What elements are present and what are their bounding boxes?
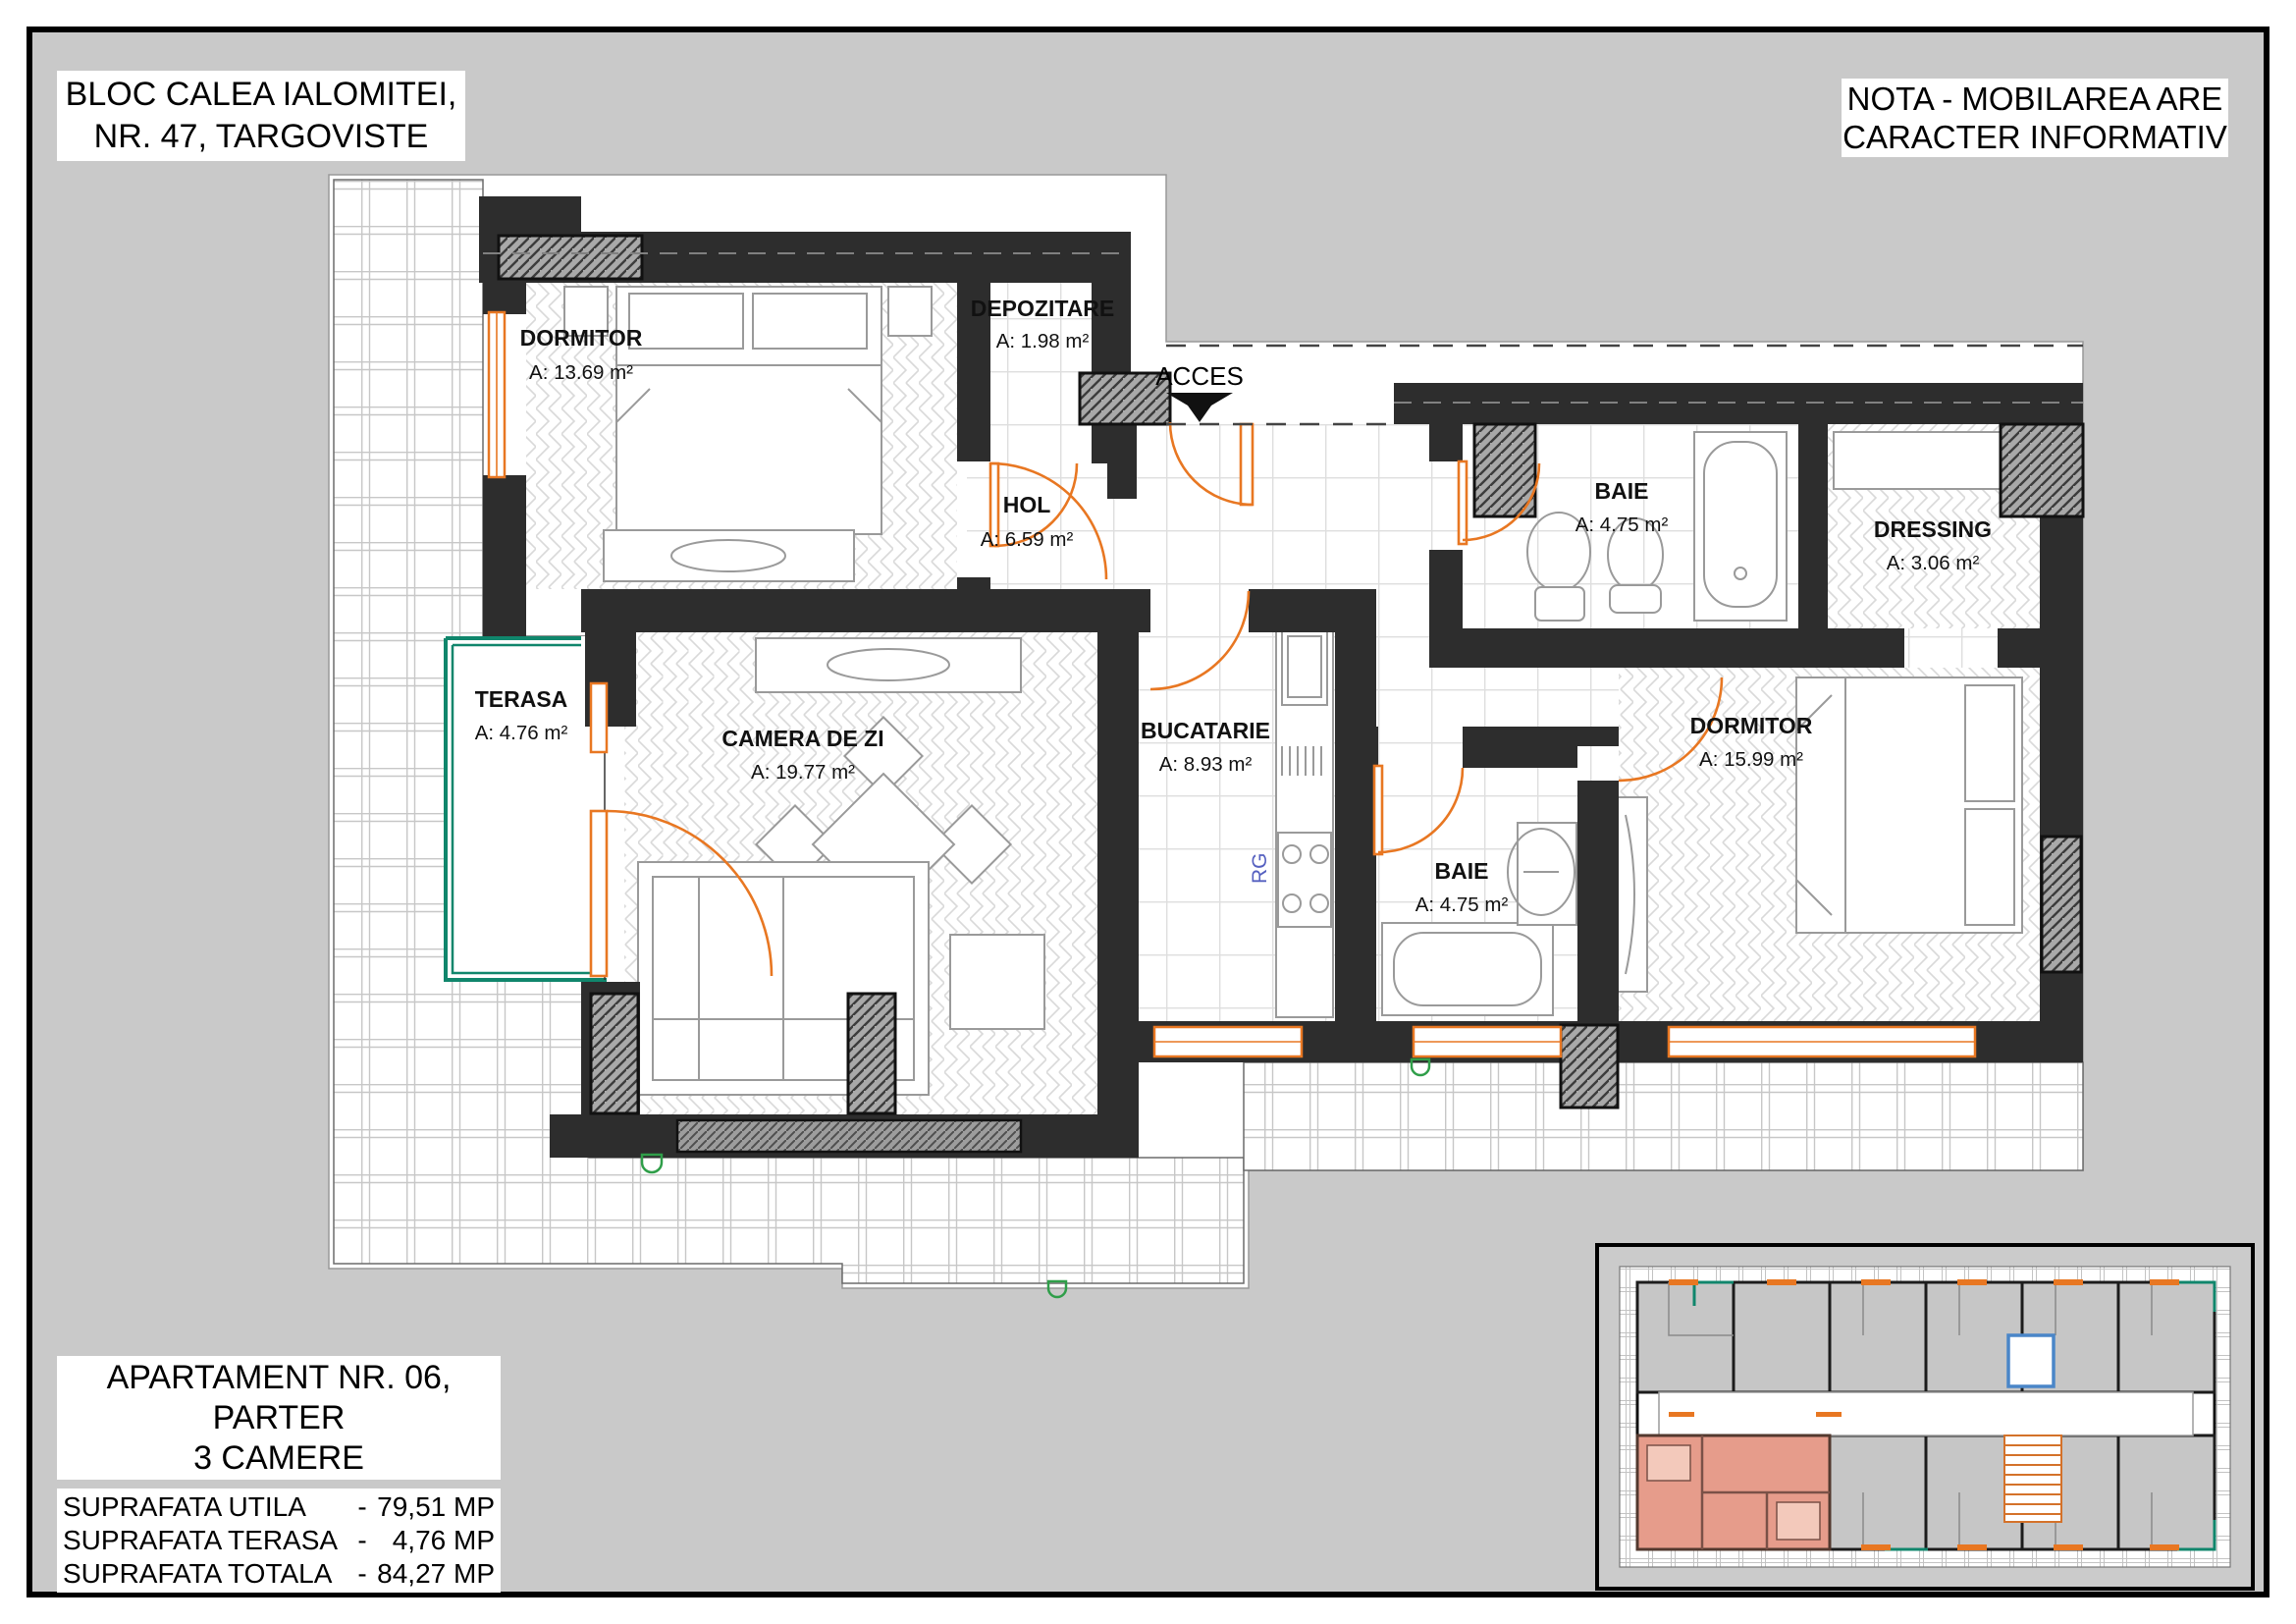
apartment-box: APARTAMENT NR. 06, PARTER 3 CAMERE (57, 1356, 501, 1480)
room-area-dressing: A: 3.06 m² (1887, 552, 1980, 574)
note-line-1: NOTA - MOBILAREA ARE (1842, 80, 2228, 118)
room-label-depozitare: DEPOZITARE (971, 296, 1115, 321)
area-dash: - (349, 1524, 375, 1557)
terrace-door-leaf (591, 811, 607, 976)
keyplan-highlight-apartment (1637, 1435, 1830, 1549)
area-value: 79,51 MP (375, 1490, 495, 1524)
apartment-line-3: 3 CAMERE (57, 1438, 501, 1479)
window-terasa (591, 683, 607, 752)
room-area-dormitor-1: A: 13.69 m² (529, 361, 633, 384)
room-area-baie-1: A: 4.75 m² (1575, 514, 1669, 536)
keyplan-minimap (1597, 1245, 2253, 1589)
room-area-depozitare: A: 1.98 m² (996, 330, 1090, 352)
area-label: SUPRAFATA TOTALA (63, 1557, 349, 1591)
room-area-dormitor-2: A: 15.99 m² (1699, 748, 1803, 771)
furniture-bucatarie (1276, 595, 1333, 1017)
area-row-terasa: SUPRAFATA TERASA - 4,76 MP (63, 1524, 495, 1557)
coffee-table (950, 935, 1044, 1029)
entry-door-leaf (1241, 424, 1253, 505)
room-label-camera-de-zi: CAMERA DE ZI (721, 726, 883, 751)
room-area-hol: A: 6.59 m² (981, 528, 1074, 551)
area-value: 4,76 MP (375, 1524, 495, 1557)
room-area-camera-de-zi: A: 19.77 m² (751, 761, 855, 784)
room-label-dormitor-2: DORMITOR (1690, 713, 1813, 738)
area-value: 84,27 MP (375, 1557, 495, 1591)
room-label-baie-1: BAIE (1595, 478, 1649, 504)
room-area-baie-2: A: 4.75 m² (1415, 893, 1509, 916)
plan-sheet: RG (0, 0, 2296, 1624)
areas-box: SUPRAFATA UTILA - 79,51 MP SUPRAFATA TER… (57, 1489, 501, 1593)
area-row-totala: SUPRAFATA TOTALA - 84,27 MP (63, 1557, 495, 1591)
window-camera-de-zi (677, 1120, 1021, 1152)
room-label-bucatarie: BUCATARIE (1141, 718, 1270, 743)
title-line-2: NR. 47, TARGOVISTE (57, 116, 465, 158)
keyplan-corridor (1659, 1392, 2193, 1435)
room-label-hol: HOL (1003, 492, 1051, 517)
apartment-line-2: PARTER (57, 1398, 501, 1438)
keyplan-stairs-icon (2004, 1435, 2061, 1522)
room-label-dormitor-1: DORMITOR (520, 325, 643, 351)
room-area-terasa: A: 4.76 m² (475, 722, 568, 744)
note-box: NOTA - MOBILAREA ARE CARACTER INFORMATIV (1842, 79, 2228, 157)
room-label-terasa: TERASA (475, 686, 568, 712)
stove-label: RG (1249, 853, 1271, 885)
keyplan-elevator-icon (2008, 1335, 2054, 1386)
access-label: ACCES (1155, 361, 1244, 391)
area-label: SUPRAFATA UTILA (63, 1490, 349, 1524)
room-label-dressing: DRESSING (1874, 516, 1992, 542)
title-line-1: BLOC CALEA IALOMITEI, (57, 74, 465, 116)
note-line-2: CARACTER INFORMATIV (1842, 118, 2228, 156)
area-row-utila: SUPRAFATA UTILA - 79,51 MP (63, 1490, 495, 1524)
apartment-line-1: APARTAMENT NR. 06, (57, 1358, 501, 1398)
furniture-dressing (1834, 432, 2001, 489)
room-area-bucatarie: A: 8.93 m² (1159, 753, 1253, 776)
title-box: BLOC CALEA IALOMITEI, NR. 47, TARGOVISTE (57, 71, 465, 161)
room-label-baie-2: BAIE (1435, 858, 1489, 884)
area-label: SUPRAFATA TERASA (63, 1524, 349, 1557)
area-dash: - (349, 1557, 375, 1591)
area-dash: - (349, 1490, 375, 1524)
